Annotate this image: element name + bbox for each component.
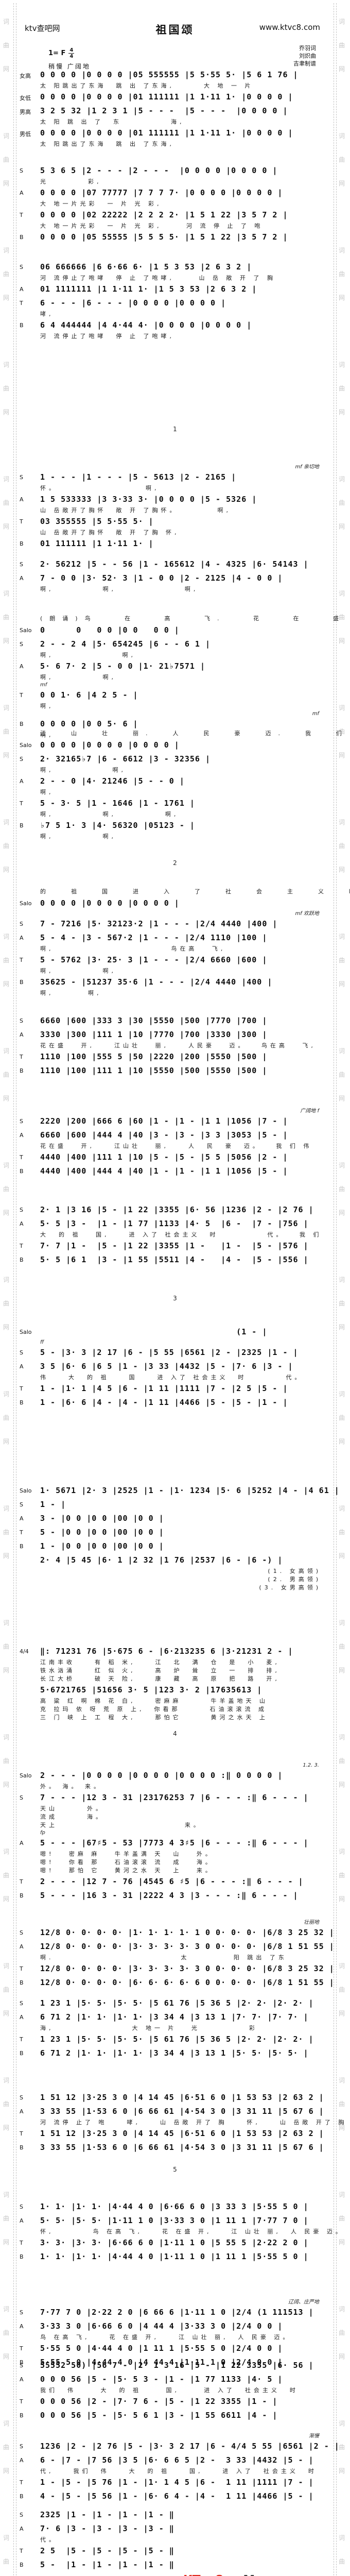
lyrics-line: 山 岳敞开了胸怀 敞 开 了胸 怀, [40,529,331,537]
voice-label: A [20,186,40,196]
watermark-char: 网 [3,752,9,758]
voice-label: A [20,2319,40,2330]
notation-line: 1 - |5 - |5 76 |1 - |1· 1 4 5 |6 - 1 11 … [40,2476,314,2489]
lyrics-line: 花在盛 开, 江山壮 丽, 人 民 豪 迈。 我 们 伟 [40,1142,331,1150]
watermark-char: 网 [3,1095,9,1101]
watermark-char: 曲 [3,957,9,963]
score-system: S2· 56212 |5 - - 56 |1 - 165612 |4 - 432… [20,557,331,594]
watermark-char: 曲 [3,2330,9,2336]
notation-line: 1 - |1· 1 |4 5 |6 - |1 11 |1111 |7 - |2 … [40,1382,288,1396]
voice-label: S [20,917,40,927]
narration-line: (朗诵)鸟 在 高 飞. 花 在 盛 开. [40,614,331,623]
voice-row: A6 71 2 |1· 1· |1· 1· |3 34 4 |3 13 1 |7… [20,2010,331,2024]
voice-row: A3 5 |6· 6 |6 5 |1 - |3 33 |4432 |5 - |7… [20,1360,331,1374]
voice-label: A [20,1512,40,1522]
voice-row: A0 0 0 0 |07 77777 |7 7 7 7· |0 0 0 0 |0… [20,186,331,200]
voice-label: 女低 [20,90,40,102]
lyrics-line: 山 岳敞开了胸怀 敞 开 了胸怀。 啊, [40,506,331,515]
voice-label: B [20,1253,40,1263]
voice-label: S [20,1014,40,1024]
watermark-char: 曲 [3,157,9,163]
watermark-char: 词 [3,2535,9,2541]
watermark-char: 网 [3,180,9,187]
watermark-char: 词 [339,2535,345,2541]
page-number: 2 [0,859,350,867]
lyrics-line: 大 地一片光彩 一 片 光 彩, [40,200,331,208]
watermark-char: 网 [339,1095,345,1101]
lyrics-line: 大 地一片光彩 一 片 光 彩, 河 流 停 止 了 咆 [40,222,331,230]
voice-label: S [20,1498,40,1508]
voice-label: S [20,1203,40,1213]
notation-line: (1 - | [40,1325,267,1339]
notation-line: 6660 |600 |333 3 |30 |5550 |500 |7770 |7… [40,1014,267,1028]
lyrics-line: 啊. 太 阳 跳出 了东 [40,1954,331,1962]
voice-label: T [20,2476,40,2486]
notation-line: 2325 |1 - |1 - |1 - |1 - ‖ [40,2508,174,2522]
voice-row: T5 - |0 0 |0 0 |00 |0 0 | [20,1526,331,1539]
watermark-char: 曲 [339,1872,345,1878]
notation-line: 01 111111 |1 1·11 1· | [40,537,154,551]
score-system: 广阔地 fS2220 |200 |666 6 |60 |1 - |1 - |1 … [20,1108,331,1178]
watermark-char: 词 [3,1620,9,1626]
voice-label: S [20,2306,40,2316]
voice-label: T [20,796,40,807]
watermark-char: 词 [339,1277,345,1283]
notation-line: 1110 |100 |111 1 |10 |5550 |500 |5550 |5… [40,1064,267,1078]
lyrics-line: 啊, 啊, 啊, [40,810,331,819]
credits: 乔羽词刘炽曲吉聿制谱 [293,44,316,67]
watermark-char: 词 [3,1963,9,1969]
lyrics-line: 啊, 鸟在高 飞, [40,945,331,953]
watermark-char: 网 [339,1782,345,1788]
notation-line: 7 - 0 0 |3· 52· 3 |1 - 0 0 |2 - 2125 |4 … [40,571,283,585]
voice-row: B35625 - |51237 35·6 |1 - - - |2/4 4440 … [20,975,331,989]
watermark-char: 曲 [339,157,345,163]
voice-label: B [20,1396,40,1406]
notation-line: 2 - - - |12 7 - 76 |4545 6 ♯5 |6 - - - :… [40,1875,304,1889]
voice-label: A [20,659,40,670]
watermark-char: 网 [339,66,345,72]
watermark-char: 曲 [339,1643,345,1650]
voice-label: A [20,493,40,503]
voice-label: S [20,2359,40,2369]
score-system: Salo1· 5671 |2· 3 |2525 |1 - |1· 1234 |5… [20,1484,331,1592]
watermark-char: 网 [3,1896,9,1902]
lyrics-line: 天山 外。 [40,1805,331,1813]
watermark-char: 词 [3,705,9,711]
watermark-char: 曲 [3,1415,9,1421]
watermark-char: 网 [3,2468,9,2474]
notation-line: 0 0 0 0 |02 22222 |2 2 2 2· |1 5 1 22 |3… [40,208,288,222]
watermark-char: 词 [3,2192,9,2198]
voice-row: S1 51 12 |3·25 3 0 |4 14 45 |6·51 6 0 |1… [20,2091,331,2105]
watermark-right: 词曲网词曲网词曲网词曲网词曲网词曲网词曲网词曲网词曲网词曲网词曲网词曲网词曲网词… [339,0,347,2576]
notation-line: 5 - 5762 |3· 25· 3 |1 - - - |2/4 6660 |6… [40,953,267,967]
score-system: 的 祖 国 进 入 了 社 会 主 义 时 代.Salo0 0 0 0 |0 0… [20,887,331,997]
watermark-char: 曲 [339,2101,345,2107]
lyrics-line: 太 阳跳出了东海 跳 出 了东海, [40,140,331,148]
notation-line: ♭7 5 1· 3 |4· 56320 |05123 - | [40,819,195,833]
voice-row: B0 0 0 56 |5 - |5· 5 6 1 |3 - |1 55 6611… [20,2409,331,2422]
watermark-char: 曲 [339,843,345,849]
watermark-char: 网 [339,2353,345,2360]
notation-line: 12/8 0· 0· 0· 0· |3· 3· 3· 3· 3 0 0· 0· … [40,1962,335,1976]
watermark-char: 词 [339,705,345,711]
lyrics-line: 克 拉玛 依 呀 荒 原 上, 你看那 石油滚滚流 成 [40,1705,331,1714]
notation-line: 5 - - - |16 3 - 31 |2222 4 3 |3 - - - :‖… [40,1889,299,1903]
notation-line: 0 0 1· 6 |4 2 5 - | [40,688,138,702]
voice-label: S [20,1791,40,1801]
voice-label: Salo [20,1484,40,1494]
watermark-char: 网 [3,2353,9,2360]
watermark-char: 词 [339,1620,345,1626]
voice-label: Salo [20,1769,40,1779]
lyrics-line: 我们 伟 大 的 祖 国, 进 入了 社会主义 时 [40,2386,331,2395]
notation-line: 1 - | [40,1498,66,1512]
voice-row: 2· 4 |5 45 |6· 1 |2 32 |1 76 |2537 |6 - … [20,1553,331,1567]
notation-line: 5· 5 |6 1 |3 - |1 55 |5511 |4 - |4 - |5 … [40,1253,309,1267]
voice-row: B♭7 5 1· 3 |4· 56320 |05123 - | [20,819,331,833]
voice-label: B [20,2558,40,2568]
voice-row: A3 33 55 |1·53 6 0 |6 66 61 |4·54 3 0 |3… [20,2105,331,2119]
notation-line: 5·55 5 0 |4·44 4 0 |1 11 1 |5·55 5 0 |2/… [40,2342,283,2355]
voice-row: T1 51 12 |3·25 3 0 |4 14 45 |6·51 6 0 |1… [20,2127,331,2141]
lyrics-line: 海, 大 地一 片 光 彩 [40,2024,331,2032]
notation-line: 0 0 0 0 |0 0 0 0 |05 555555 |5 5·55 5· |… [40,68,299,82]
lyrics-line: 代, 我们 伟 大 的 祖 国, 进 入了 社会主义 时 [40,2467,331,2476]
voice-row: T3· 3· |3· 3· |6·66 6 0 |1·11 1 0 |5 55 … [20,2236,331,2250]
voice-label: T [20,2544,40,2554]
voice-label: A [20,2453,40,2464]
notation-line: 4440 |400 |111 1 |10 |5 - |5 - |5 5 |505… [40,1150,288,1164]
notation-line: 1· 1· |1· 1· |4·44 4 0 |1·11 1 0 |1 11 1… [40,2250,309,2264]
voice-row: S6660 |600 |333 3 |30 |5550 |500 |7770 |… [20,1014,331,1028]
watermark-char: 曲 [3,843,9,849]
notation-line: 2· 1 |3 16 |5 - |1 22 |3355 |6· 56 |1236… [40,1203,314,1217]
voice-row: S1236 |2 - |2 76 |5 - |3· 3 2 17 |6 - 4/… [20,2439,331,2453]
notation-line: 5· 5 |3 - |1 - |1 77 |1133 |4· 5 |6 - |7… [40,1217,309,1231]
watermark-char: 词 [339,1963,345,1969]
watermark-char: 词 [339,2306,345,2312]
watermark-char: 曲 [3,42,9,48]
lyrics-line: (1. 女高领) [40,1567,321,1575]
notation-line: 3 2 5 32 |1 2 3 1 |5 - - - |5 - - - |0 0… [40,104,288,118]
voice-label: S [20,2508,40,2518]
score-system: Salo (1 - |ffS5 - |3· 3 |2 17 |6 - |5 55… [20,1325,331,1410]
lyrics-line: 流成 海。 [40,1813,331,1821]
watermark-char: 网 [3,1667,9,1673]
lyrics-line: 嗯! 你看 那 石油滚滚 流 成 海。 [40,1858,331,1867]
credit-line: 刘炽曲 [293,52,316,60]
watermark-char: 网 [339,2010,345,2016]
notation-line: 1· 5671 |2· 3 |2525 |1 - |1· 1234 |5· 6 … [40,1484,340,1498]
voice-label: B [20,318,40,329]
watermark-char: 网 [339,409,345,415]
voice-label: B [20,1889,40,1899]
voice-label: T [20,1962,40,1972]
voice-label: T [20,296,40,307]
notation-line: 7 - - - |12 3 - 31 |23176253 7 |6 - - - … [40,1791,309,1805]
voice-label: B [20,2046,40,2057]
lyrics-line: 怀。 啊, [40,484,331,493]
lyrics-line: 河 流停止了咆哮 停 止 了咆哮, [40,332,331,341]
notation-line: 5 - - - |67♯5 - 53 |7773 4 3♯5 |6 - - - … [40,1836,309,1850]
voice-label: B [20,2250,40,2260]
watermark-char: 曲 [3,500,9,506]
voice-row: A7· 6 |3 - |3 - |3 - |3 - ‖ [20,2522,331,2536]
voice-label: S [20,557,40,568]
voice-label: S [20,1114,40,1125]
watermark-char: 网 [3,295,9,301]
watermark-char: 曲 [3,1186,9,1192]
voice-row: S06 666666 |6 6·66 6· |1 5 3 53 |2 6 3 2… [20,260,331,274]
ktvc8-logo-main: KTvc8.coM [183,2573,260,2576]
notation-line: 6660 |600 |444 4 |40 |3 - |3 - |3 3 |305… [40,1128,288,1142]
voice-row: T4440 |400 |111 1 |10 |5 - |5 - |5 5 |50… [20,1150,331,1164]
watermark-char: 词 [3,476,9,482]
voice-row: A6 - |7 - |7 56 |3 5 |6· 6 6 5 |2 - 3 33… [20,2453,331,2467]
watermark-char: 网 [3,1553,9,1559]
voice-label: A [20,1836,40,1846]
watermark-char: 网 [339,2468,345,2474]
voice-row: A0 0 0 56 |5 - |5· 5 3 - |1 - |1 77 1133… [20,2372,331,2386]
lyrics-line: 外。 海。 来。 [40,1783,331,1791]
key-text: 1= F [48,49,65,57]
voice-label: S [20,2200,40,2210]
watermark-char: 曲 [339,1415,345,1421]
voice-row: S12/8 0· 0· 0· 0· |1· 1· 1· 1· 1 0 0· 0·… [20,1926,331,1940]
watermark-char: 网 [3,981,9,987]
voice-label: B [20,1164,40,1175]
notation-line: 03 355555 |5 5·55 5· | [40,515,154,529]
voice-label: T [20,2236,40,2246]
notation-line: 0 0 0 0 |0 0 0 0 |0 0 0 0 | [40,738,180,752]
voice-label: B [20,819,40,829]
watermark-char: 词 [339,1849,345,1855]
notation-line: 1 23 1 |5· 5· |5· 5· |5 61 76 |5 36 5 |2… [40,2032,314,2046]
lyrics-line: 啊, 啊, [40,673,331,682]
notation-line: 2 - - 2 4 |5· 654245 |6 - - 6 1 | [40,637,211,651]
watermark-char: 词 [339,819,345,825]
voice-row: A1 5 533333 |3 3·33 3· |0 0 0 0 |5 - 532… [20,493,331,506]
watermark-char: 网 [339,752,345,758]
voice-row: B1 - |6· 6 |4 - |4 - |1 11 |4466 |5 - |5… [20,1396,331,1410]
notation-line: 0 0 0 56 |2 - |7· 7 6 - |5 - |1 22 3355 … [40,2395,277,2409]
notation-line: 5 3 6 5 |2 - - - |2 - - - |0 0 0 0 |0 0 … [40,164,277,178]
voice-row: B4 - |5 - |5 56 |1 - |6· 6 4 - |4 - 1 11… [20,2489,331,2503]
notation-line: 6 - - - |6 - - - |0 0 0 0 |0 0 0 0 | [40,296,226,310]
notation-line: 3 33 55 |1·53 6 0 |6 66 61 |4·54 3 0 |3 … [40,2105,324,2119]
right-border-rail [334,3,337,2576]
voice-label: 男高 [20,104,40,116]
voice-label: S [20,1996,40,2007]
voice-row: S2· 32165♭7 |6 - 6612 |3 - 32356 | [20,752,331,766]
notation-line: 1· 1· |1· 1· |4·44 4 0 |6·66 6 0 |3 33 3… [40,2200,309,2214]
watermark-char: 词 [339,1162,345,1168]
voice-row: S1 23 1 |5· 5· |5· 5· |5 61 76 |5 36 5 |… [20,1996,331,2010]
notation-line: 1236 |2 - |2 76 |5 - |3· 3 2 17 |6 - 4/4… [40,2439,340,2453]
voice-label: B [20,717,40,727]
watermark-char: 曲 [3,1529,9,1535]
voice-label: S [20,1346,40,1356]
notation-line: 2 - - - |0 0 0 0 |0 0 0 0 |0 0 0 0 :‖ 0 … [40,1769,283,1783]
notation-line: 2· 56212 |5 - - 56 |1 - 165612 |4 - 4325… [40,557,309,571]
score-page: 词曲网词曲网词曲网词曲网词曲网词曲网词曲网词曲网词曲网词曲网词曲网词曲网词曲网词… [0,0,350,2576]
watermark-char: 网 [3,2125,9,2131]
voice-label: A [20,2522,40,2532]
voice-label: S [20,1926,40,1936]
lyrics-line: 太 阳 跳 出 了 东 海, [40,118,331,126]
voice-label: T [20,2032,40,2043]
lyrics-line: 河 流停止了咆哮 停 止 了咆哮, 山 岳 敞 开 了 胸 [40,274,331,282]
watermark-char: 曲 [339,1072,345,1078]
watermark-char: 网 [339,1667,345,1673]
watermark-char: 曲 [3,1758,9,1764]
notation-line: 5 - |0 0 |0 0 |00 |0 0 | [40,1526,164,1539]
notation-line: 0 0 0 0 |0 0 0 0 |01 111111 |1 1·11 1· |… [40,126,293,140]
watermark-char: 网 [339,295,345,301]
voice-label: 男低 [20,126,40,138]
watermark-char: 曲 [3,2558,9,2565]
voice-row: B1· 1· |1· 1· |4·44 4 0 |1·11 1 0 |1 11 … [20,2250,331,2264]
voice-row: A12/8 0· 0· 0· 0· |3· 3· 3· 3· 3 0 0· 0·… [20,1940,331,1954]
dynamics-mark: fp [40,1829,331,1836]
watermark-left: 词曲网词曲网词曲网词曲网词曲网词曲网词曲网词曲网词曲网词曲网词曲网词曲网词曲网词… [3,0,11,2576]
voice-row: S5 3 6 5 |2 - - - |2 - - - |0 0 0 0 |0 0… [20,164,331,178]
voice-label: B [20,1064,40,1074]
voice-label: S [20,470,40,481]
watermark-char: 曲 [3,1987,9,1993]
voice-row: T1 23 1 |5· 5· |5· 5· |5 61 76 |5 36 5 |… [20,2032,331,2046]
notation-line: 3 5 |6· 6 |6 5 |1 - |3 33 |4432 |5 - |7·… [40,1360,293,1374]
lyrics-line: 光 彩, [40,178,331,186]
voice-row: A3·33 3 0 |6·66 6 0 |4 44 4 |3·33 3 0 |2… [20,2319,331,2333]
dynamics-mark: mf 亲切地 [40,464,331,470]
voice-row: A5· 5 |3 - |1 - |1 77 |1133 |4· 5 |6 - |… [20,1217,331,1231]
voice-row: T0 0 1· 6 |4 2 5 - | [20,688,331,702]
voice-row: T7· 7 |1 - |5 - |1 22 |3355 |1 - |1 - |5… [20,1239,331,1253]
lyrics-line: 伟 大 的 祖 国 进 入了 社会主义 时 代。 [40,1374,331,1382]
watermark-char: 曲 [339,2215,345,2222]
voice-row: B0 0 0 0 |05 55555 |5 5 5 5· |1 5 1 22 |… [20,230,331,244]
watermark-char: 词 [3,133,9,139]
credit-line: 乔羽词 [293,44,316,52]
watermark-char: 词 [3,362,9,368]
watermark-char: 词 [339,934,345,940]
watermark-char: 曲 [339,2330,345,2336]
watermark-char: 词 [3,1391,9,1397]
voice-label: T [20,2342,40,2352]
lyrics-line: 啊, 啊, [40,967,331,975]
voice-label: T [20,208,40,218]
voice-label: A [20,282,40,293]
voice-row: T2 - - - |12 7 - 76 |4545 6 ♯5 |6 - - - … [20,1875,331,1889]
watermark-char: 网 [339,1210,345,1216]
voice-label: T [20,1382,40,1392]
notation-line: 2220 |200 |666 6 |60 |1 - |1 - |1 1 |105… [40,1114,288,1128]
notation-line: 1 51 12 |3·25 3 0 |4 14 45 |6·51 6 0 |1 … [40,2091,324,2105]
watermark-char: 网 [3,523,9,530]
notation-line: 1 - |0 0 |0 0 |00 |0 0 | [40,1539,164,1553]
voice-row: T03 355555 |5 5·55 5· | [20,515,331,529]
voice-label: Salo [20,623,40,634]
dynamics-mark: 壮丽地 [40,1919,331,1926]
watermark-char: 网 [3,1782,9,1788]
lyrics-line: 大 的 祖 国, 进 入了 社会主义 时 代。 我 们 [40,1231,331,1239]
lyrics-line: 代。 [40,2536,331,2544]
notation-line: 01 1111111 |1 1·11 1· |1 5 3 53 |2 6 3 2… [40,282,257,296]
voice-row: A2 - - 0 |4· 21246 |5 - - 0 | [20,774,331,788]
notation-line: 0 0 0 56 |5 - |5· 5 6 1 |3 - |1 55 6611 … [40,2409,277,2422]
notation-line: 5· 5· |5· 5· |1·11 1 0 |3·33 3 0 |1 11 1… [40,2214,309,2228]
voice-row: 男低0 0 0 0 |0 0 0 0 |01 111111 |1 1·11 1·… [20,126,331,140]
notation-line: 35625 - |51237 35·6 |1 - - - |2/4 4440 |… [40,975,272,989]
voice-label [20,1683,40,1687]
voice-label: Salo [20,1325,40,1335]
watermark-char: 曲 [3,2444,9,2450]
voice-row: 男高3 2 5 32 |1 2 3 1 |5 - - - |5 - - - |0… [20,104,331,118]
lyrics-line: 啊, 啊, [40,989,331,997]
notation-line: 1 - |6· 6 |4 - |4 - |1 11 |4466 |5 - |5 … [40,1396,288,1410]
voice-row: S7 - - - |12 3 - 31 |23176253 7 |6 - - -… [20,1791,331,1805]
notation-line: 12/8 0· 0· 0· 0· |3· 3· 3· 3· 3 0 0· 0· … [40,1940,335,1954]
notation-line: 3330 |300 |111 1 |10 |7770 |700 |3330 |3… [40,1028,267,1042]
notation-line: 7 - 7216 |5· 32123·2 |1 - - - |2/4 4440 … [40,917,277,931]
voice-label: Salo [20,896,40,907]
voice-row: T5 - 3· 5 |1 - 1646 |1 - 1761 | [20,796,331,810]
watermark-char: 网 [339,867,345,873]
voice-row: T0 0 0 56 |2 - |7· 7 6 - |5 - |1 22 3355… [20,2395,331,2409]
dynamics-mark: 渐慢 [40,2433,331,2439]
voice-row: S2 - - 2 4 |5· 654245 |6 - - 6 1 | [20,637,331,651]
voice-row: B01 111111 |1 1·11 1· | [20,537,331,551]
voice-label: B [20,2141,40,2151]
watermark-char: 词 [339,1505,345,1512]
notation-line: 5·6721765 |51656 3· 5 |123 3· 2 |1763561… [40,1683,262,1697]
notation-line: 0 0 0 0 |0 0 0 0 |0 0 0 0 | [40,896,180,910]
score-system: S2325 |1 - |1 - |1 - |1 - ‖A7· 6 |3 - |3… [20,2508,331,2572]
watermark-char: 曲 [339,1186,345,1192]
watermark-char: 网 [3,1324,9,1330]
score-system: S1· 1· |1· 1· |4·44 4 0 |6·66 6 0 |3 33 … [20,2200,331,2264]
voice-label: B [20,230,40,241]
score-system: S1 51 12 |3·25 3 0 |4 14 45 |6·51 6 0 |1… [20,2091,331,2155]
voice-label: A [20,1128,40,1139]
watermark-char: 词 [339,476,345,482]
watermark-char: 网 [339,1324,345,1330]
voice-label: B [20,2409,40,2419]
voice-row: S1 - | [20,1498,331,1512]
voice-row: Salo0 0 0 0 |0 0 0 0 | [20,623,331,637]
page-number: 4 [0,1730,350,1737]
lyrics-line: 啊, 啊, [40,651,331,659]
lyrics-line: 啊, [40,788,331,796]
voice-row: B1 - |0 0 |0 0 |00 |0 0 | [20,1539,331,1553]
notation-line: 2 5 |5 - |5 - |5 - |5 - ‖ [40,2544,174,2558]
voice-label: A [20,774,40,785]
voice-row: Salo (1 - | [20,1325,331,1339]
voice-label: S [20,164,40,174]
notation-line: 3 - |0 0 |0 0 |00 |0 0 | [40,1512,164,1526]
narration-line: 江 山 壮 丽. 人 民 豪 迈. 我 们 伟 大 [40,729,331,738]
watermark-char: 曲 [3,614,9,620]
notation-line: 5 - |3· 3 |2 17 |6 - |5 55 |6561 |2 - |2… [40,1346,299,1360]
voice-label: T [20,953,40,963]
lyrics-line: (3. 女男高领) [40,1584,321,1592]
watermark-char: 网 [339,1896,345,1902]
voice-row: 女低0 0 0 0 |0 0 0 0 |01 111111 |1 1·11 1·… [20,90,331,104]
score-system: 4/4‖: 71231 76 |5·675 6 - |6·213235 6 |3… [20,1645,331,1722]
